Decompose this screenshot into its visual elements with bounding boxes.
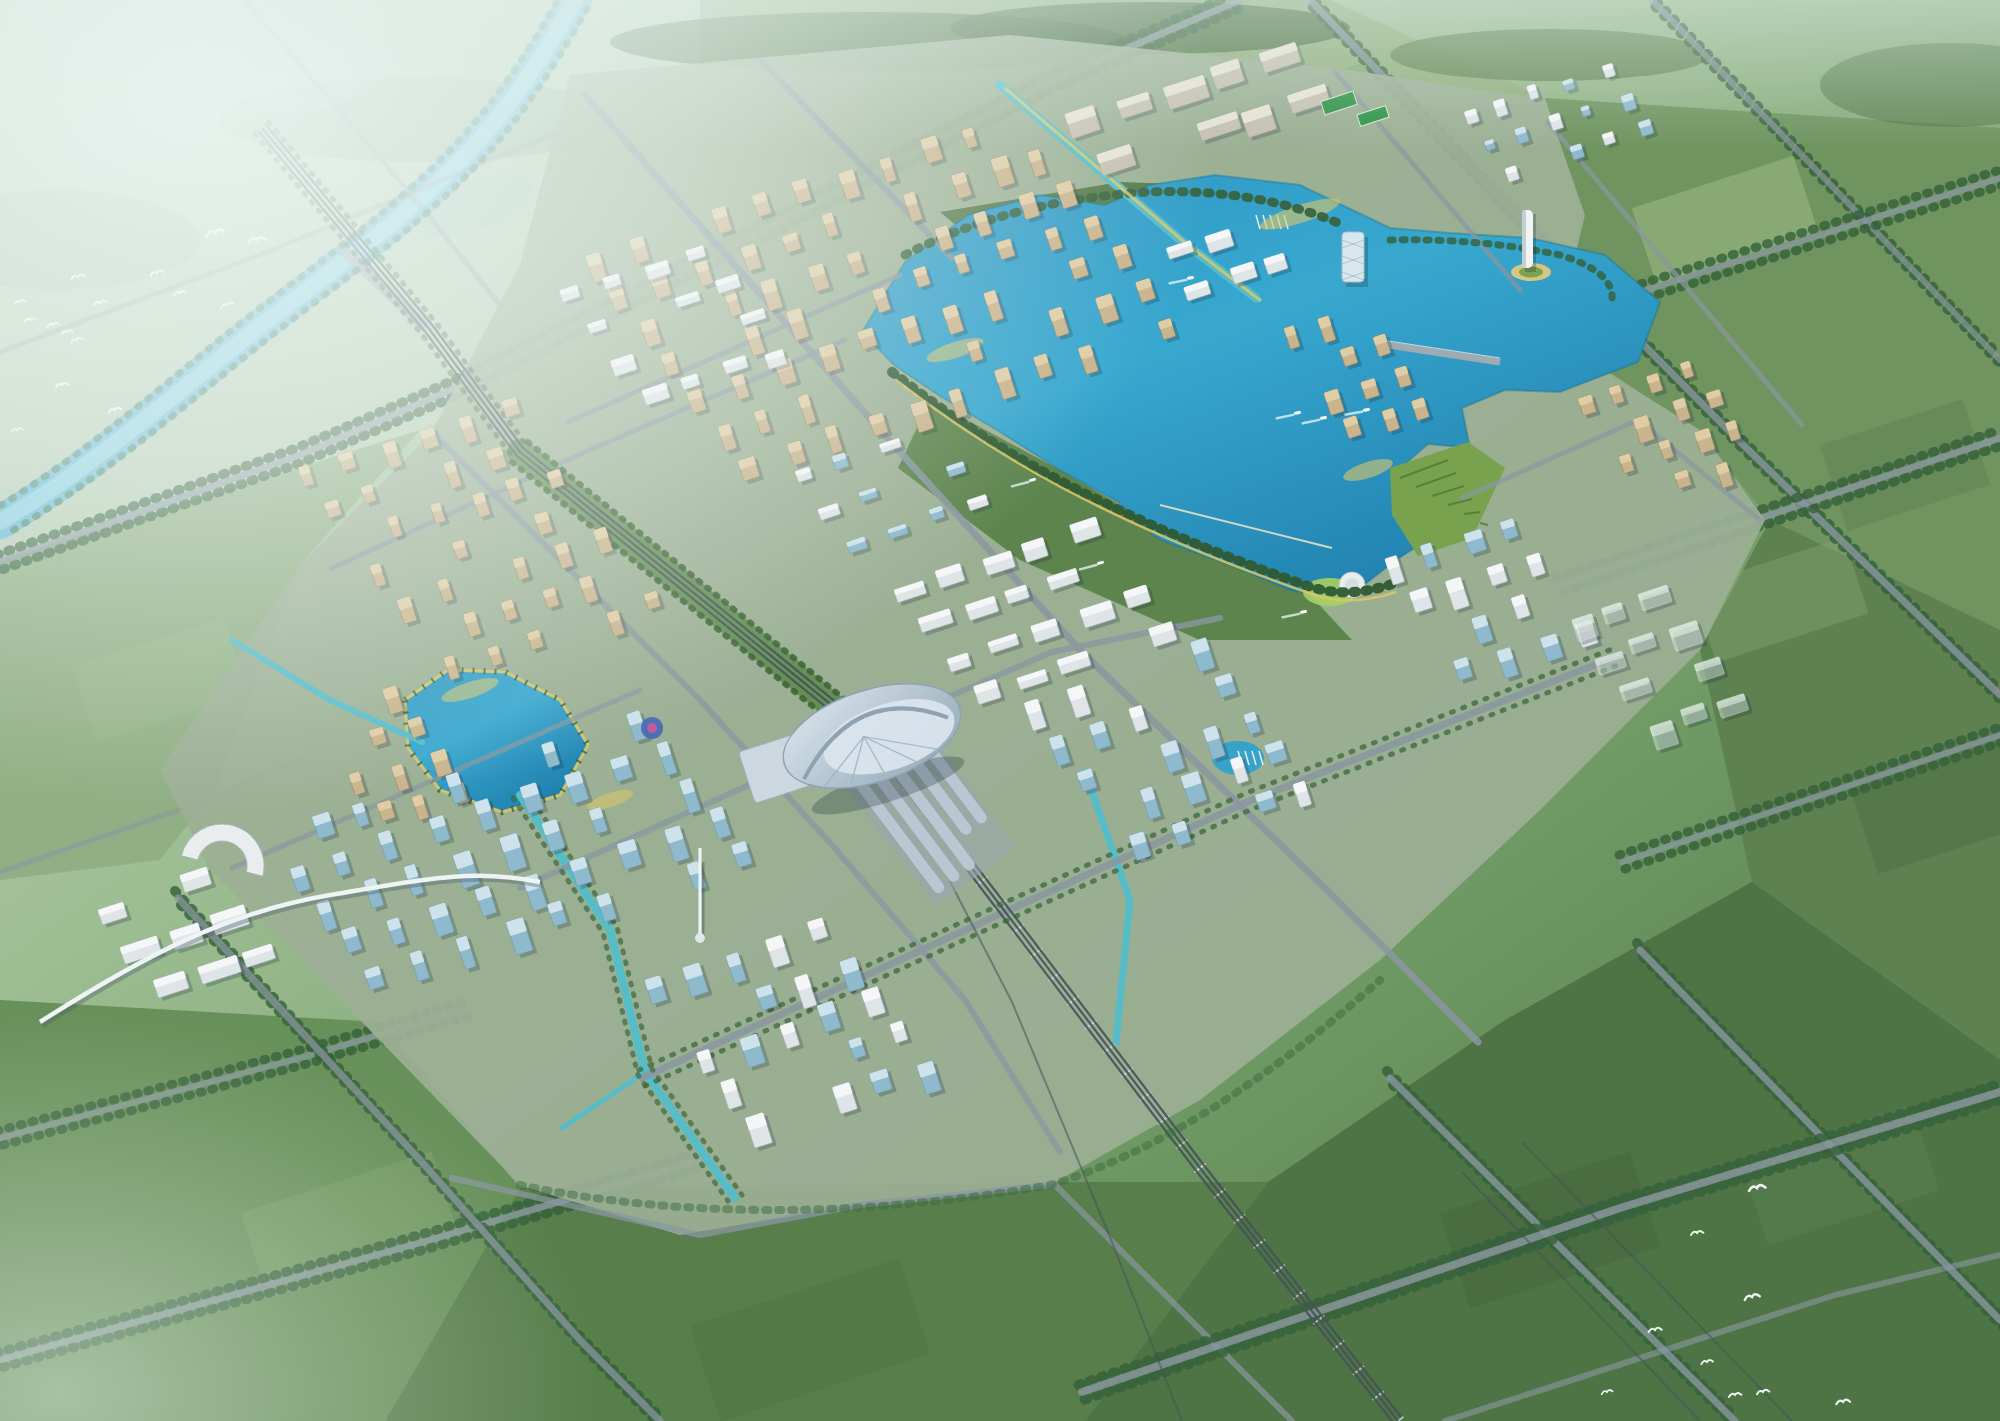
scene-canvas xyxy=(0,0,2000,1421)
layer-atmosphere xyxy=(0,0,2000,1421)
aerial-city-rendering xyxy=(0,0,2000,1421)
haze-southwest xyxy=(0,0,2000,1421)
